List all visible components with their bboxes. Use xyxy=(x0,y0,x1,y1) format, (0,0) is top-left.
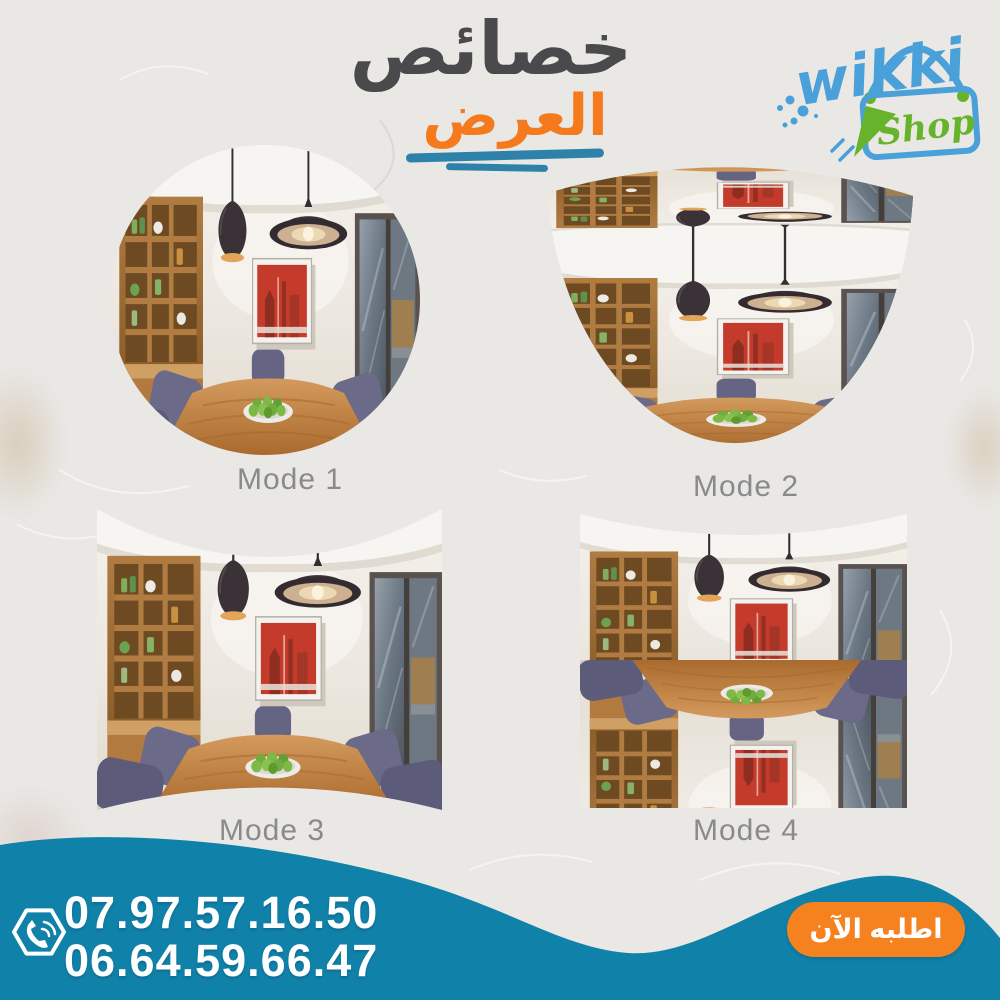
logo-subtext: Shop xyxy=(874,101,977,154)
order-now-label: اطلبه الآن xyxy=(810,914,943,945)
mode-4-upper-view xyxy=(580,512,907,660)
phone-numbers: 07.97.57.16.50 06.64.59.66.47 xyxy=(64,889,378,984)
mode-2-label: Mode 2 xyxy=(646,470,846,504)
title-line-1: خصائص xyxy=(311,10,671,88)
mode-4-preview xyxy=(580,512,907,808)
mode-4-mirrored-view xyxy=(580,660,907,808)
wikki-shop-logo: wikki Shop xyxy=(758,8,993,163)
order-now-button[interactable]: اطلبه الآن xyxy=(787,902,965,957)
mode-1-preview xyxy=(110,145,420,455)
title-underline-stroke xyxy=(406,148,604,162)
paper-smudge xyxy=(948,388,1000,508)
title-line-2: العرض xyxy=(335,88,695,145)
phone-number-1: 07.97.57.16.50 xyxy=(64,889,378,937)
mode-1-label: Mode 1 xyxy=(190,463,390,497)
promo-poster: خصائص العرض wikki Shop Mode 1 Mode 2 xyxy=(0,0,1000,1000)
phone-number-2: 06.64.59.66.47 xyxy=(64,937,378,985)
mode-2-preview xyxy=(545,148,920,448)
paper-smudge xyxy=(0,368,65,518)
mode-3-preview xyxy=(97,505,442,810)
title-underline-stroke-small xyxy=(446,163,548,172)
speed-lines-icon xyxy=(832,140,853,160)
phone-hexagon-icon xyxy=(12,903,66,961)
